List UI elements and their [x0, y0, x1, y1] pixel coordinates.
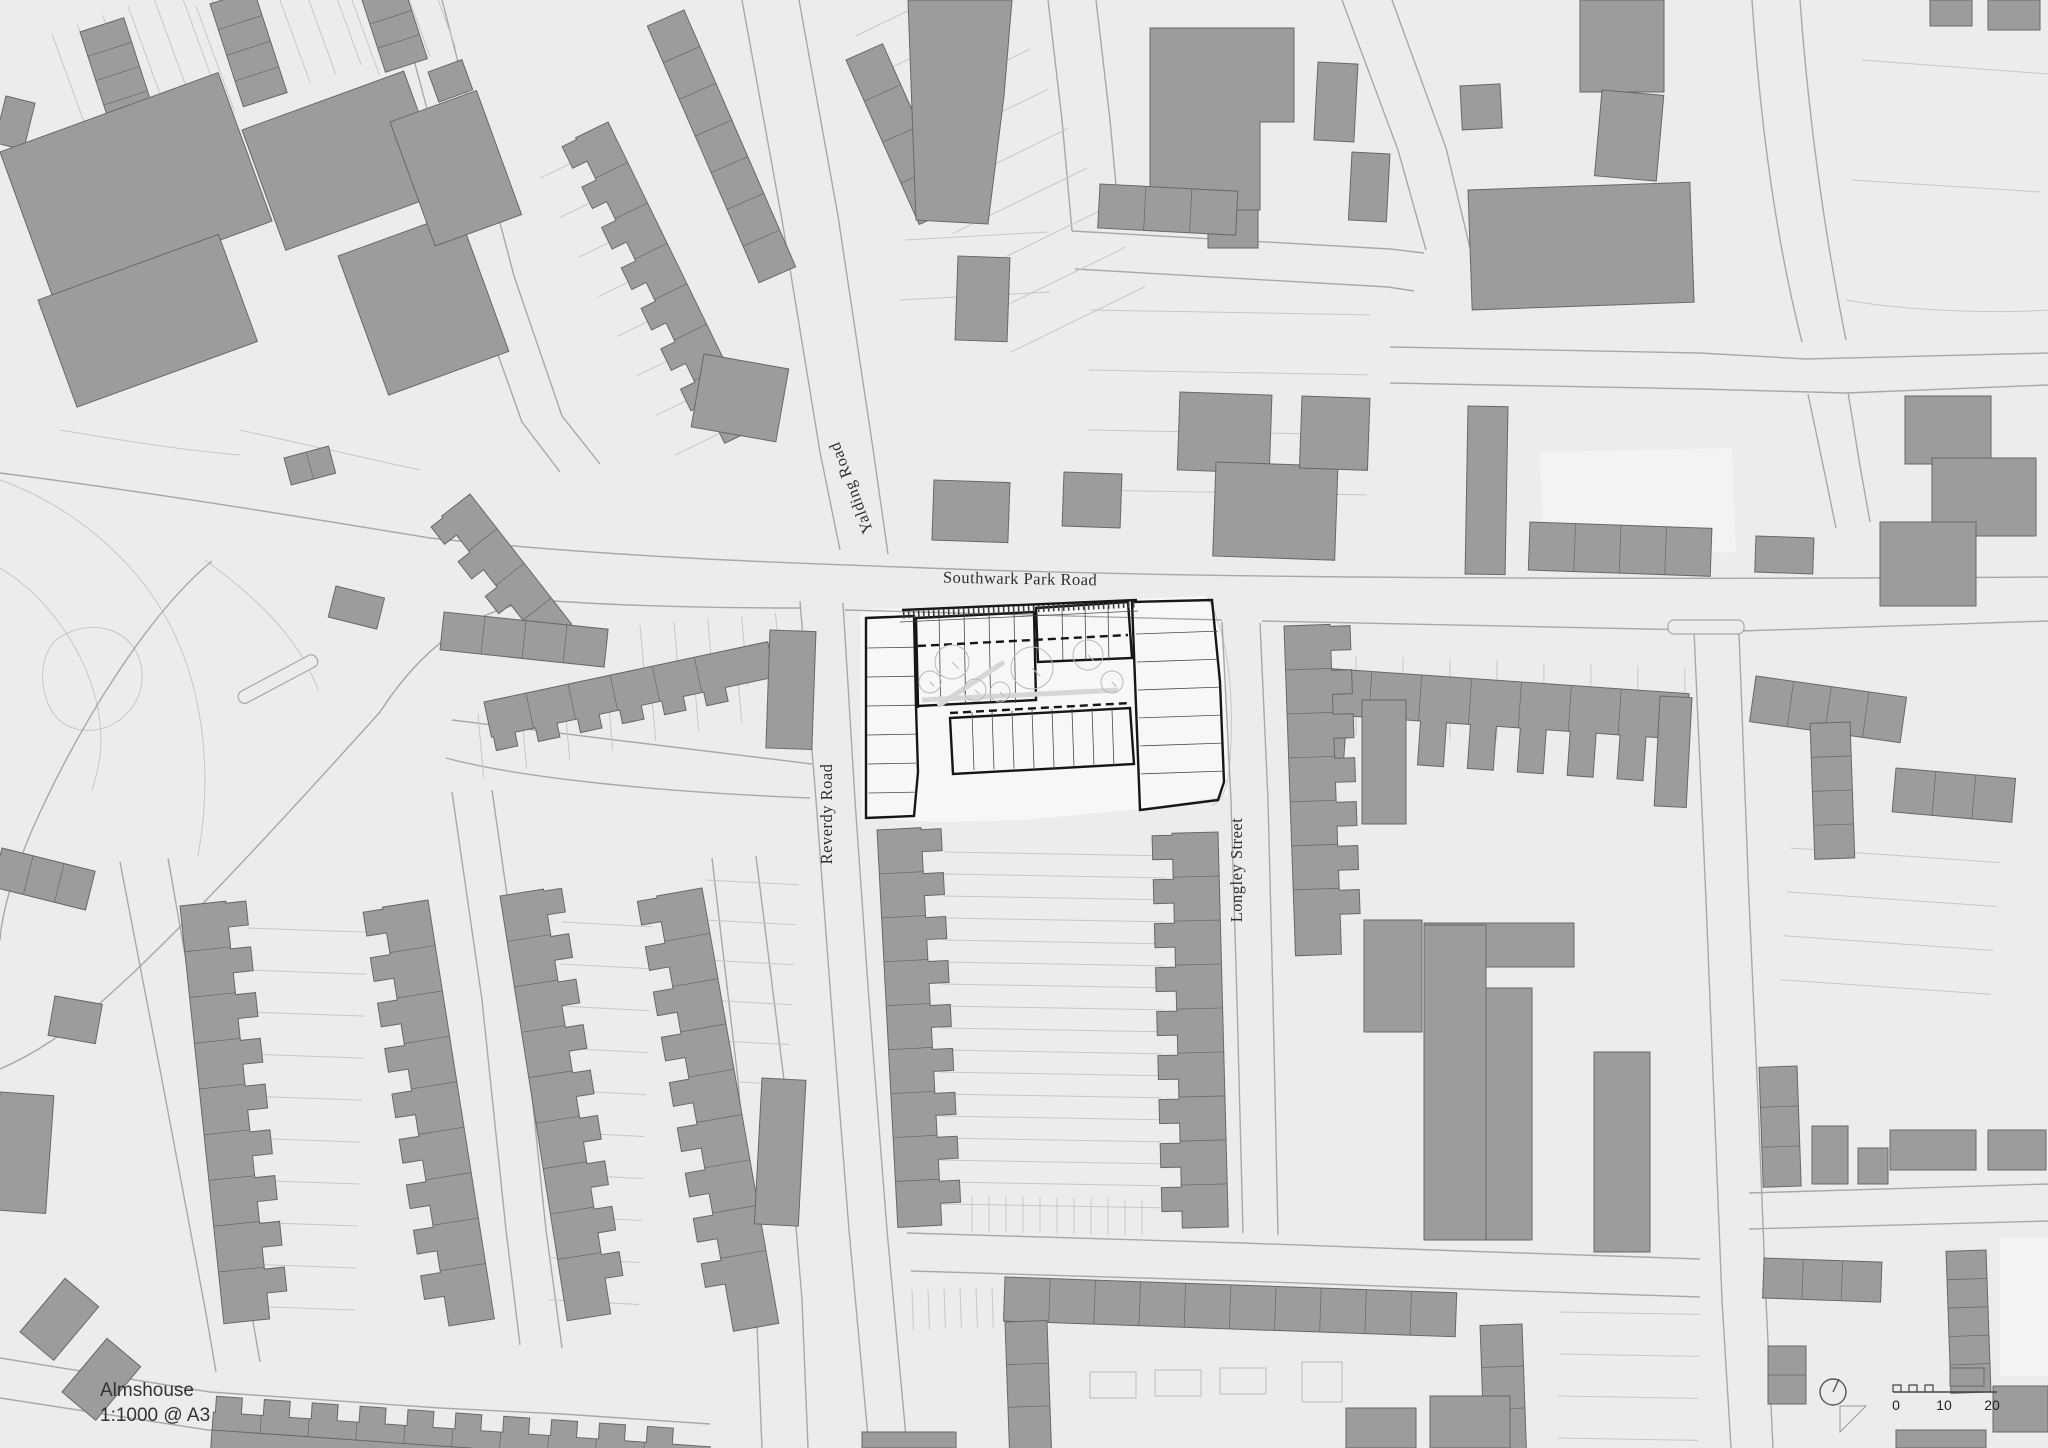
- building-footprint: [1177, 392, 1272, 473]
- building-footprint: [1314, 62, 1358, 142]
- drawing-title: Almshouse: [100, 1380, 194, 1401]
- building-footprint: [1424, 925, 1486, 1240]
- road-label-yalding-road: Yalding Road: [825, 439, 877, 536]
- road-kerb: [1808, 394, 1836, 528]
- building-footprint: [338, 212, 509, 395]
- building-footprint: [862, 1432, 956, 1448]
- road-kerb: [1048, 0, 1072, 231]
- building-footprint: [328, 586, 384, 629]
- building-footprint: [1880, 522, 1976, 606]
- road-kerb: [1260, 623, 1278, 1235]
- road-label-longley-street: Longley Street: [1227, 818, 1246, 923]
- building-row: [362, 0, 427, 72]
- north-arrow: [1820, 1379, 1866, 1432]
- building-footprint: [1346, 1408, 1416, 1448]
- building-row: [0, 848, 95, 910]
- building-row: [1763, 1258, 1882, 1302]
- title-block: Almshouse 1:1000 @ A3: [100, 1380, 210, 1426]
- building-footprint: [1858, 1148, 1888, 1184]
- parcel-line: [0, 480, 205, 856]
- road-kerb: [1740, 621, 2048, 631]
- road-kerb: [1075, 269, 1414, 291]
- building-row: [1759, 1066, 1801, 1187]
- site-plan-sheet: Southwark Park Road Yalding Road Reverdy…: [0, 0, 2048, 1448]
- terrace-outline: [500, 886, 629, 1320]
- road-kerb: [1848, 392, 1870, 522]
- building-footprint: [754, 1078, 806, 1226]
- map-canvas: Southwark Park Road Yalding Road Reverdy…: [0, 0, 2048, 1448]
- building-footprint: [1890, 1130, 1976, 1170]
- courtyard-shed: [1155, 1370, 1201, 1396]
- building-row: [1005, 1321, 1051, 1448]
- building-footprint: [1465, 406, 1508, 575]
- terrace-outline: [877, 827, 962, 1228]
- courtyard-shed: [1090, 1372, 1136, 1398]
- building-footprint: [1988, 1130, 2046, 1170]
- building-footprint: [20, 1278, 99, 1360]
- building-footprint: [1988, 0, 2040, 30]
- building-footprint: [1062, 472, 1122, 528]
- building-footprint: [955, 256, 1010, 342]
- open-ground: [2000, 1238, 2048, 1376]
- building-row: [1768, 1346, 1806, 1404]
- road-kerb: [446, 758, 810, 798]
- scale-label-20: 20: [1984, 1397, 2000, 1413]
- road-kerb: [1739, 633, 1773, 1448]
- parcel-line: [1862, 60, 2048, 74]
- building-footprint: [1930, 0, 1972, 26]
- building-row: [1810, 722, 1855, 859]
- building-row: [647, 10, 795, 283]
- terrace-outline: [647, 10, 795, 283]
- terrace-row: [363, 900, 495, 1329]
- parcel-line: [972, 1196, 1142, 1235]
- terrace-row: [1284, 624, 1361, 956]
- building-footprint: [1299, 396, 1369, 470]
- building-footprint: [908, 0, 1012, 224]
- building-footprint: [932, 480, 1010, 543]
- terrace-outline: [0, 848, 95, 910]
- parcel-line: [0, 568, 101, 790]
- road-kerb: [1752, 0, 1802, 342]
- building-footprint: [1486, 988, 1532, 1240]
- north-arrow-needle: [1833, 1379, 1839, 1392]
- building-row: [440, 612, 608, 667]
- parcel-line: [1558, 1312, 1700, 1440]
- building-footprint: [1896, 1430, 1986, 1448]
- parcel-line: [1852, 180, 2040, 192]
- building-footprint: [1468, 182, 1694, 310]
- terrace-outline: [1892, 768, 2015, 822]
- building-row: [1098, 184, 1238, 235]
- terrace-outline: [1005, 1321, 1051, 1448]
- road-kerb: [1390, 347, 2048, 359]
- building-footprint: [766, 630, 816, 750]
- building-footprint: [1654, 696, 1692, 808]
- building-footprint: [1213, 462, 1338, 560]
- building-footprint: [1594, 1052, 1650, 1252]
- parcel-line: [1781, 848, 2000, 994]
- building-footprint: [1460, 84, 1502, 130]
- scale-label-10: 10: [1936, 1397, 1952, 1413]
- map-geometry: [0, 0, 2048, 1448]
- building-row: [1528, 522, 1712, 576]
- terrace-row: [500, 886, 629, 1320]
- parcel-line: [60, 430, 240, 455]
- terrace-outline: [1098, 184, 1238, 235]
- building-footprint: [1812, 1126, 1848, 1184]
- drawing-scale: 1:1000 @ A3: [100, 1405, 210, 1426]
- road-kerb: [1749, 1221, 2048, 1229]
- road-kerb: [0, 473, 2048, 578]
- building-footprint: [1950, 1368, 1984, 1386]
- road-kerb: [1694, 631, 1731, 1448]
- road-label-reverdy-road: Reverdy Road: [817, 763, 836, 864]
- road-kerb: [0, 600, 540, 1069]
- terrace-outline: [1284, 624, 1361, 956]
- scale-bar-teeth: [1893, 1385, 1933, 1392]
- building-row: [1892, 768, 2015, 822]
- terrace-outline: [1759, 1066, 1801, 1187]
- building-footprint: [1905, 396, 1991, 464]
- road-kerb: [1800, 0, 1846, 340]
- scale-label-0: 0: [1892, 1397, 1900, 1413]
- building-footprint: [1364, 920, 1422, 1032]
- terrace-outline: [1763, 1258, 1882, 1302]
- terrace-outline: [1152, 832, 1228, 1229]
- building-footprint: [1430, 1396, 1510, 1448]
- road-kerb: [1390, 383, 2048, 393]
- parcel-line: [912, 1287, 993, 1330]
- north-arrow-triangle: [1840, 1406, 1866, 1432]
- building-footprint: [1755, 536, 1814, 574]
- traffic-island: [1668, 620, 1744, 634]
- road-label-southwark-park-road: Southwark Park Road: [943, 568, 1098, 590]
- parcel-line: [938, 852, 1166, 1208]
- traffic-island: [236, 653, 320, 706]
- courtyard-shed: [1220, 1368, 1266, 1394]
- parcel-line: [905, 232, 1048, 240]
- terrace-outline: [362, 0, 427, 72]
- terrace-row: [637, 888, 779, 1335]
- road-kerb: [907, 1233, 1700, 1259]
- building-footprint: [1580, 0, 1664, 92]
- building-footprint: [691, 354, 789, 442]
- courtyard-shed: [1302, 1362, 1342, 1402]
- terrace-row: [877, 827, 962, 1228]
- terrace-outline: [363, 900, 495, 1329]
- building-footprint: [1150, 28, 1294, 210]
- terrace-outline: [637, 888, 779, 1335]
- building-footprint: [1993, 1386, 2048, 1432]
- parcel-line: [1846, 300, 2048, 312]
- building-footprint: [1595, 90, 1664, 181]
- building-footprint: [0, 1092, 54, 1213]
- building-footprint: [1348, 152, 1390, 222]
- building-footprint: [48, 996, 102, 1044]
- road-kerb: [540, 600, 800, 608]
- road-kerb: [1392, 0, 1470, 248]
- building-row: [284, 446, 336, 485]
- building-footprint: [1362, 700, 1406, 824]
- parcel-line: [43, 627, 143, 730]
- terrace-row: [1152, 832, 1228, 1229]
